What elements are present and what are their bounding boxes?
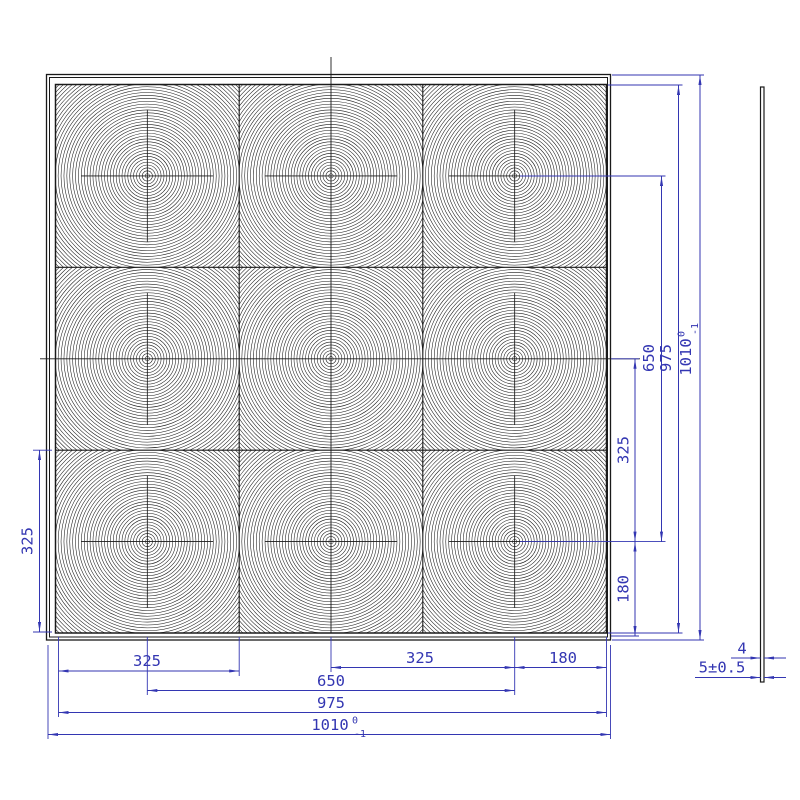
dim-text-1010-right-group: 1010 0 -1 — [677, 323, 702, 376]
dim-text-325-left: 325 — [19, 527, 37, 555]
panel-outer-border-inner-line — [50, 78, 608, 638]
dim-text-325-right: 325 — [615, 436, 633, 464]
engineering-drawing-canvas: 325 325 180 650 975 1010 0 -1 325 180 65… — [0, 0, 800, 800]
dim-text-650-right: 650 — [640, 344, 658, 372]
dim-text-975-bottom: 975 — [317, 694, 345, 712]
front-view — [18, 46, 645, 671]
bottom-dimensions: 325 325 180 650 975 1010 0 -1 — [48, 637, 611, 740]
dim-text-1010-right-sup: 0 — [677, 331, 688, 337]
dim-text-180-right: 180 — [615, 575, 633, 603]
dim-text-1010-bottom-sub: -1 — [354, 729, 366, 740]
side-view-plate — [761, 87, 765, 682]
dim-text-325-bottom-right: 325 — [406, 649, 434, 667]
dim-text-1010-right-sub: -1 — [690, 323, 701, 335]
right-dimensions: 325 180 650 975 1010 0 -1 — [520, 75, 704, 640]
dim-text-325-bottom-left: 325 — [133, 652, 161, 670]
dim-text-1010-bottom: 1010 — [311, 716, 348, 734]
drawing-sheet: 325 325 180 650 975 1010 0 -1 325 180 65… — [0, 0, 800, 800]
dim-text-180-bottom: 180 — [549, 649, 577, 667]
dim-text-650-bottom: 650 — [317, 672, 345, 690]
dim-text-975-right: 975 — [657, 344, 675, 372]
side-dimensions: 4 5±0.5 — [695, 640, 786, 678]
dim-text-4: 4 — [737, 640, 746, 658]
side-view — [761, 87, 765, 682]
dim-text-5: 5±0.5 — [699, 659, 746, 677]
dim-text-1010-bottom-sup: 0 — [352, 716, 358, 727]
dim-text-1010-right: 1010 — [677, 338, 695, 375]
